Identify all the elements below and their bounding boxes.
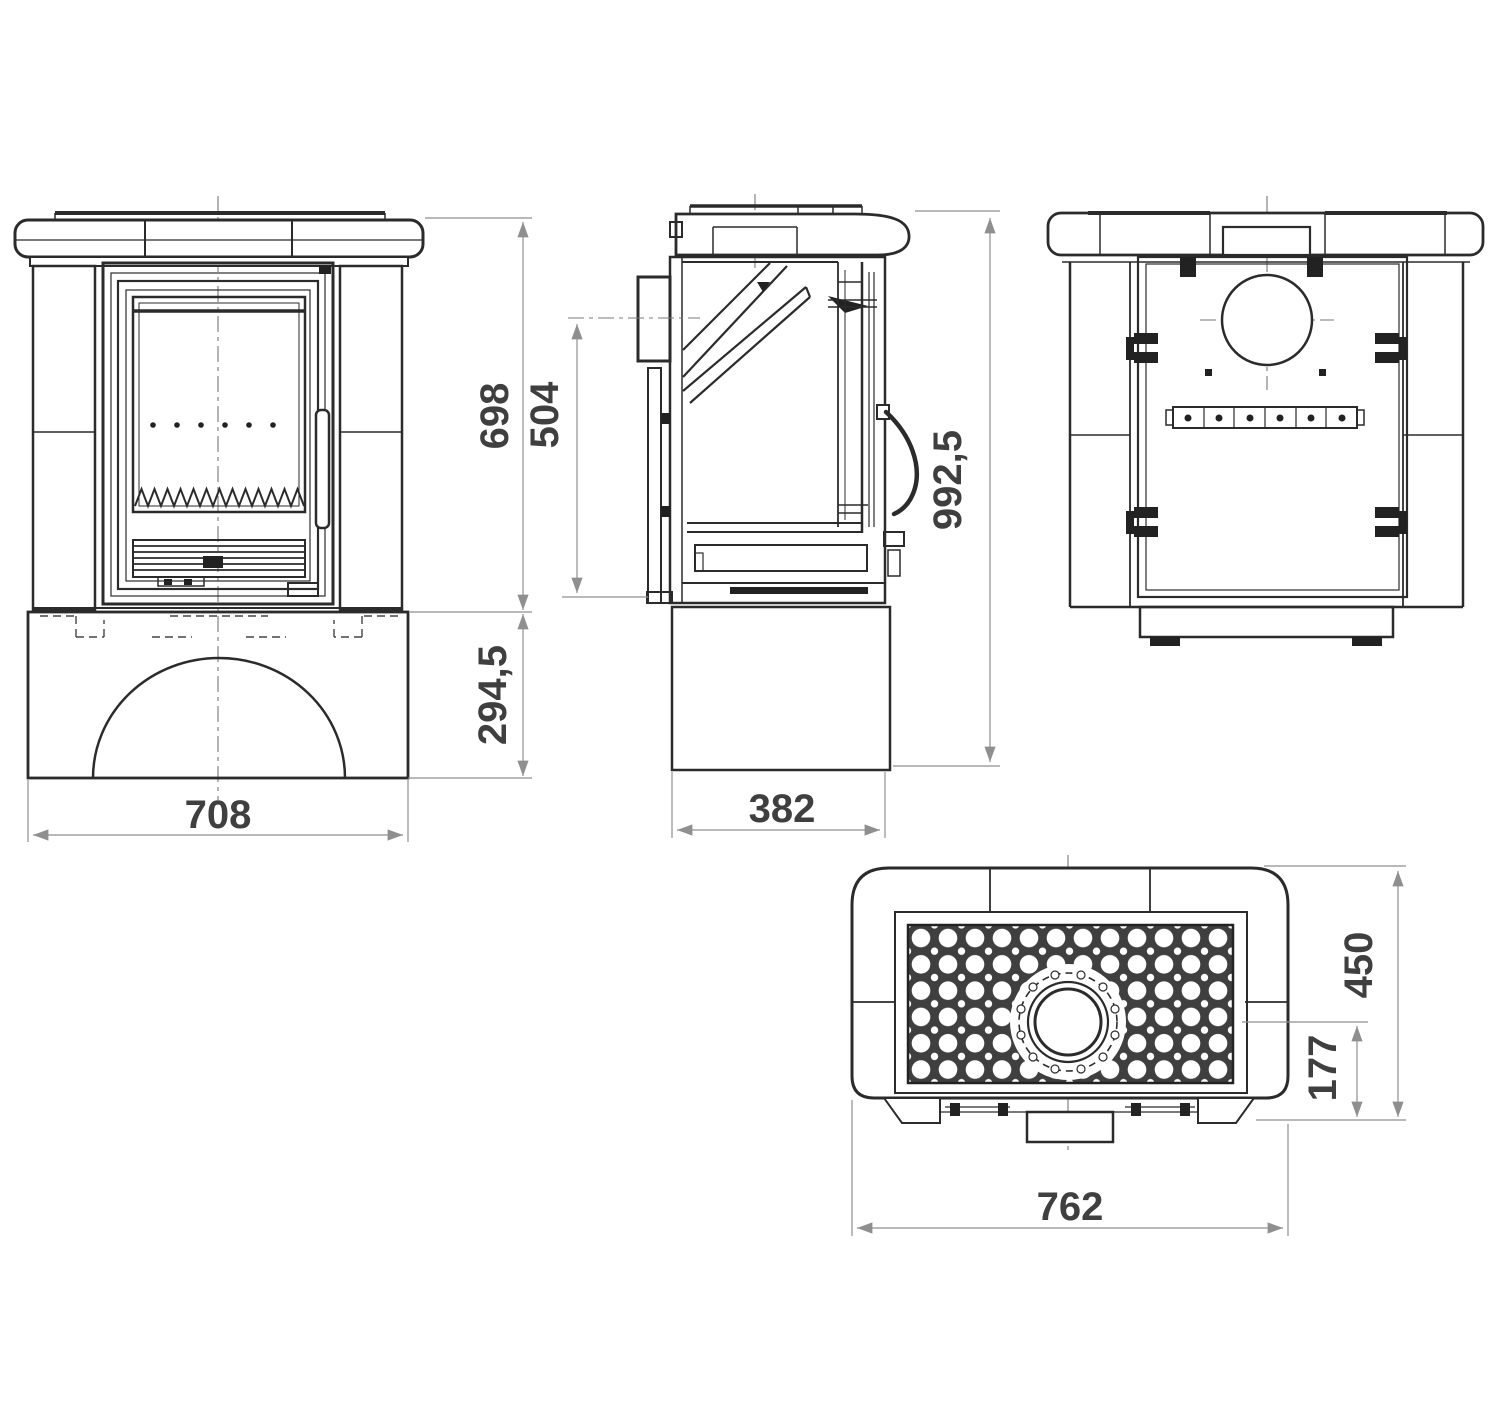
front-view: 698 294,5 708 xyxy=(15,196,532,842)
back-view xyxy=(1048,196,1483,646)
air-intake-box xyxy=(638,277,670,361)
front-plinth xyxy=(28,608,408,778)
stove-technical-drawing: 698 294,5 708 xyxy=(0,0,1500,1427)
dim-text-intake-height: 504 xyxy=(523,381,567,448)
back-bolt-strip xyxy=(1166,407,1364,428)
front-glass-door xyxy=(133,297,305,512)
top-view: 762 450 177 xyxy=(852,855,1406,1236)
top-flue-collar xyxy=(1010,964,1126,1080)
side-body xyxy=(638,257,917,603)
drawing-sheet: 698 294,5 708 xyxy=(0,0,1500,1427)
side-mantel xyxy=(670,206,909,255)
back-base xyxy=(1140,607,1393,646)
front-mantel xyxy=(15,213,423,266)
dim-text-front-base-height: 294,5 xyxy=(471,645,515,745)
dim-text-front-height: 698 xyxy=(473,383,517,450)
flue-outlet-circle xyxy=(1222,275,1312,365)
dim-text-total-height: 992,5 xyxy=(926,430,970,530)
plinth-arch xyxy=(93,658,345,778)
side-dimensions: 504 992,5 382 xyxy=(523,211,1000,838)
front-right-pillar xyxy=(340,266,402,610)
dim-text-base-depth: 382 xyxy=(749,787,816,831)
dim-text-flue-offset: 177 xyxy=(1301,1035,1345,1102)
rear-heat-shield xyxy=(648,368,661,603)
airwash-holes xyxy=(150,422,276,428)
smoke-baffle-plates xyxy=(683,263,877,403)
front-left-pillar xyxy=(33,266,95,610)
back-body xyxy=(1070,257,1463,646)
side-pedestal xyxy=(672,607,890,770)
dim-text-front-width: 708 xyxy=(185,793,252,837)
top-front-details xyxy=(884,1098,1254,1142)
front-vent-grille xyxy=(133,540,318,596)
log-retainer-zigzag xyxy=(135,489,304,506)
dim-text-top-depth: 450 xyxy=(1337,932,1381,999)
front-door-handle xyxy=(316,410,329,528)
back-mantel xyxy=(1048,213,1483,262)
dim-text-top-width: 762 xyxy=(1037,1185,1104,1229)
side-door-handle xyxy=(877,405,917,576)
side-view: 504 992,5 382 xyxy=(523,194,1000,838)
